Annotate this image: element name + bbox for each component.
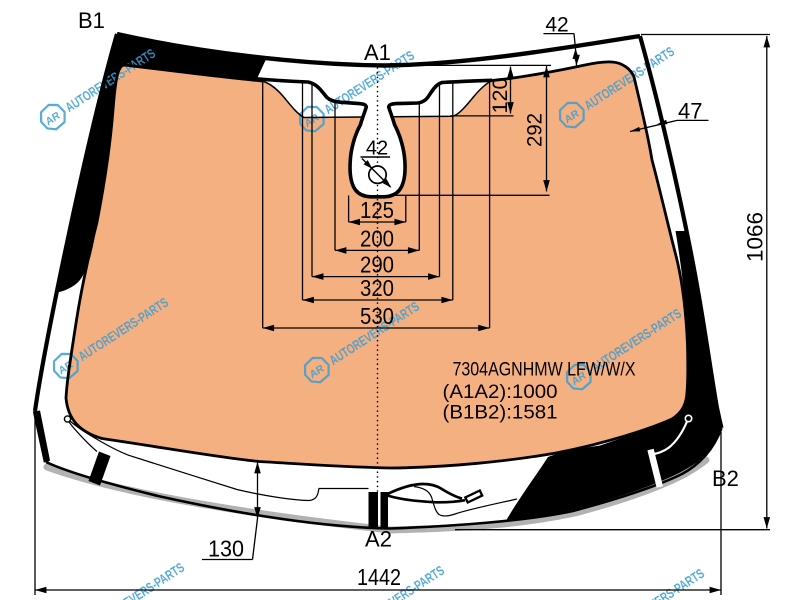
svg-text:290: 290 <box>360 252 394 278</box>
svg-text:A2: A2 <box>365 527 392 552</box>
svg-text:292: 292 <box>523 113 547 147</box>
svg-text:120: 120 <box>488 77 512 113</box>
svg-text:530: 530 <box>360 303 394 329</box>
svg-text:(A1A2):1000: (A1A2):1000 <box>443 381 558 403</box>
svg-text:130: 130 <box>208 536 244 562</box>
svg-text:1442: 1442 <box>357 564 401 590</box>
svg-text:320: 320 <box>360 275 394 301</box>
svg-text:7304AGNHMW LFW/W/X: 7304AGNHMW LFW/W/X <box>453 359 636 381</box>
svg-text:125: 125 <box>360 197 394 223</box>
svg-text:42: 42 <box>366 138 388 160</box>
svg-text:(B1B2):1581: (B1B2):1581 <box>443 402 558 424</box>
svg-text:B2: B2 <box>712 466 739 491</box>
svg-text:B1: B1 <box>78 8 105 33</box>
svg-text:A1: A1 <box>364 40 391 65</box>
svg-text:1066: 1066 <box>743 212 768 262</box>
svg-text:200: 200 <box>360 225 394 251</box>
